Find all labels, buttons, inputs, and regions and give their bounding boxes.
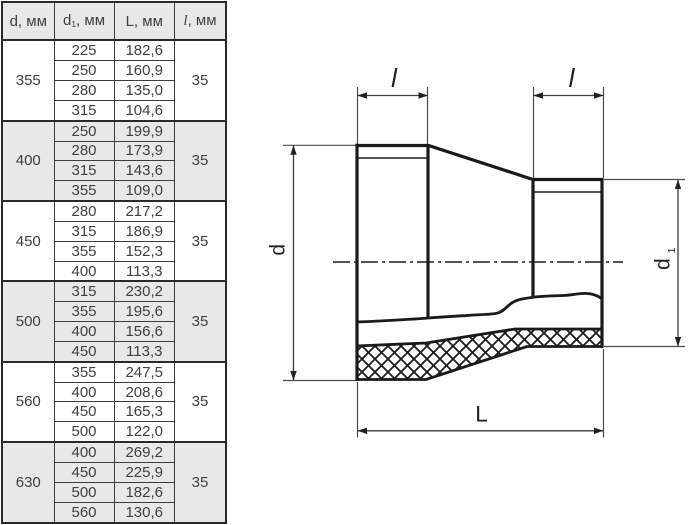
svg-text:l: l xyxy=(569,63,576,93)
svg-text:d1: d1 xyxy=(652,247,678,270)
svg-text:d: d xyxy=(266,244,289,256)
svg-text:l: l xyxy=(391,63,398,93)
svg-text:L: L xyxy=(475,402,488,427)
